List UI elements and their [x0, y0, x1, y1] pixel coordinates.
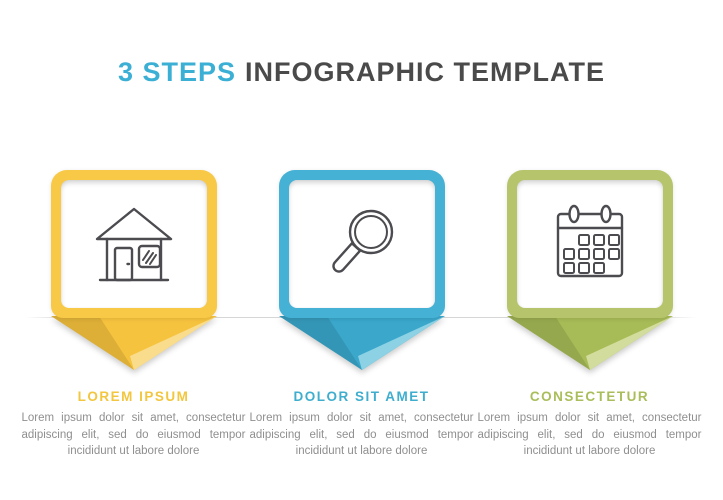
step-2-pointer [279, 316, 445, 370]
magnifier-icon [316, 198, 408, 290]
step-3-icon-panel [517, 180, 663, 308]
step-1-marker [51, 170, 217, 370]
page-title: 3 STEPSINFOGRAPHIC TEMPLATE [0, 57, 723, 88]
title-rest: INFOGRAPHIC TEMPLATE [245, 57, 605, 87]
step-3-marker [507, 170, 673, 370]
step-1-heading: LOREM IPSUM [78, 389, 190, 404]
step-3-pointer [507, 316, 673, 370]
step-3-frame [507, 170, 673, 318]
title-highlight: 3 STEPS [118, 57, 236, 87]
steps-row: LOREM IPSUM Lorem ipsum dolor sit amet, … [0, 170, 723, 460]
step-1-frame [51, 170, 217, 318]
house-icon [88, 201, 180, 287]
step-1-pointer [51, 316, 217, 370]
step-3-heading: CONSECTETUR [530, 389, 649, 404]
step-3: CONSECTETUR Lorem ipsum dolor sit amet, … [476, 170, 704, 460]
step-2-description: Lorem ipsum dolor sit amet, consectetur … [250, 410, 474, 460]
step-2: DOLOR SIT AMET Lorem ipsum dolor sit ame… [248, 170, 476, 460]
step-2-frame [279, 170, 445, 318]
step-2-heading: DOLOR SIT AMET [294, 389, 430, 404]
step-1-icon-panel [61, 180, 207, 308]
step-2-marker [279, 170, 445, 370]
step-1-description: Lorem ipsum dolor sit amet, consectetur … [22, 410, 246, 460]
step-3-description: Lorem ipsum dolor sit amet, consectetur … [478, 410, 702, 460]
infographic-canvas: 3 STEPSINFOGRAPHIC TEMPLATE [0, 0, 723, 500]
calendar-icon [544, 198, 636, 290]
step-2-icon-panel [289, 180, 435, 308]
step-1: LOREM IPSUM Lorem ipsum dolor sit amet, … [20, 170, 248, 460]
